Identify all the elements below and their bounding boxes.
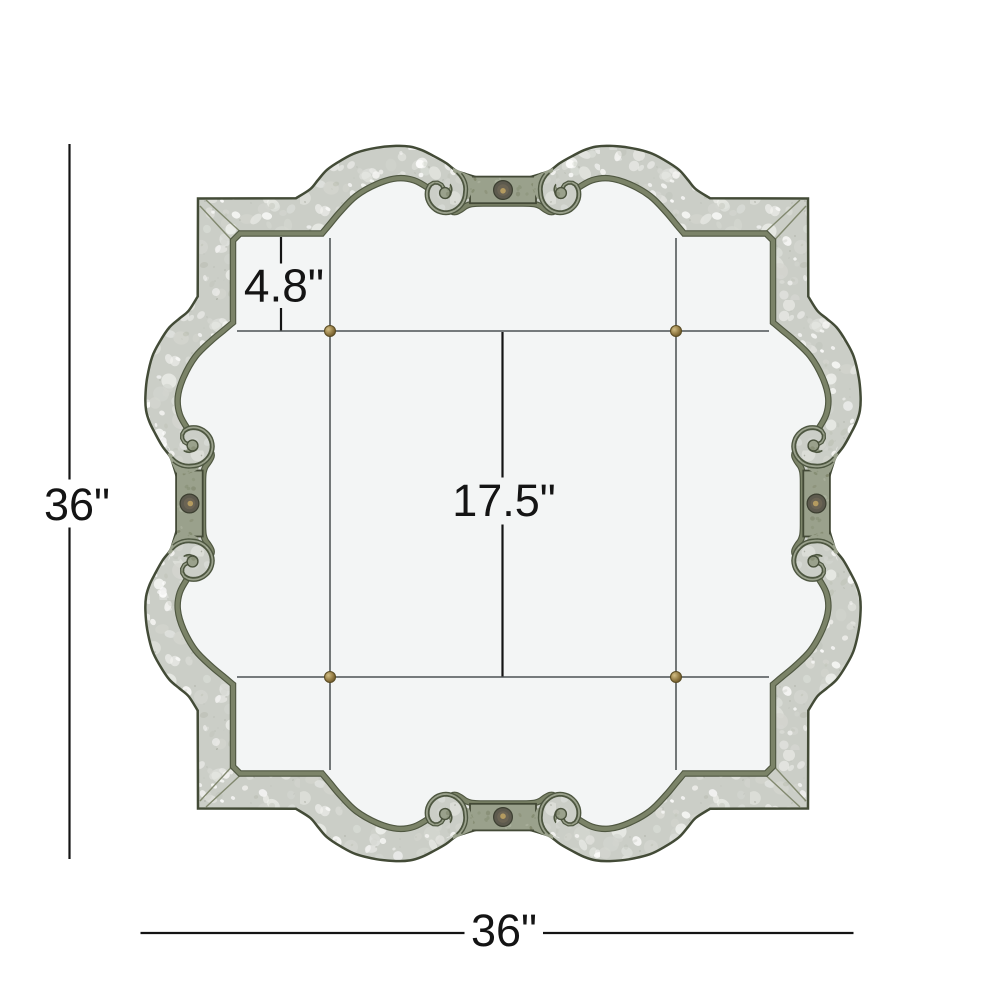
svg-text:36": 36" bbox=[44, 479, 110, 530]
svg-text:4.8": 4.8" bbox=[244, 260, 324, 312]
svg-text:17.5": 17.5" bbox=[452, 475, 556, 526]
svg-text:36": 36" bbox=[471, 905, 537, 956]
